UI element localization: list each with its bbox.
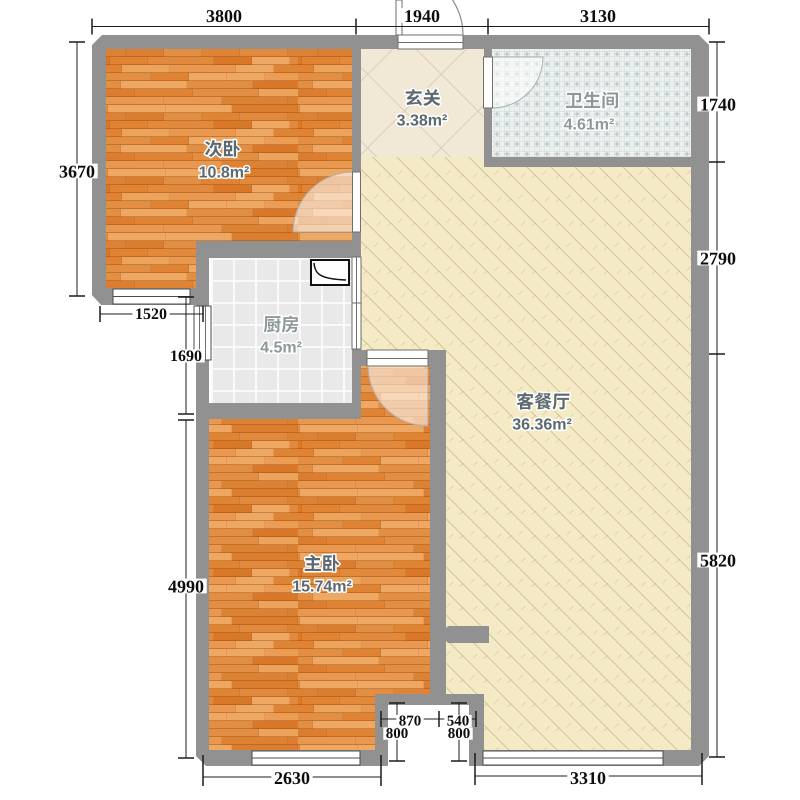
svg-text:2630: 2630 <box>274 768 310 788</box>
svg-text:4.61m²: 4.61m² <box>564 117 615 134</box>
svg-text:5820: 5820 <box>700 551 736 571</box>
svg-text:2790: 2790 <box>700 249 736 269</box>
svg-text:3310: 3310 <box>570 768 606 788</box>
svg-text:1690: 1690 <box>170 348 202 365</box>
svg-text:1940: 1940 <box>404 6 440 26</box>
svg-text:4.5m²: 4.5m² <box>260 340 302 357</box>
svg-text:10.8m²: 10.8m² <box>199 165 250 182</box>
svg-text:800: 800 <box>386 726 409 742</box>
svg-text:3.38m²: 3.38m² <box>397 113 448 130</box>
svg-text:36.36m²: 36.36m² <box>512 417 572 434</box>
svg-text:800: 800 <box>448 726 471 742</box>
svg-text:3670: 3670 <box>59 162 95 182</box>
svg-text:3800: 3800 <box>206 6 242 26</box>
svg-text:15.74m²: 15.74m² <box>292 579 352 596</box>
svg-text:4990: 4990 <box>168 577 204 597</box>
svg-text:1520: 1520 <box>135 306 167 323</box>
svg-text:3130: 3130 <box>580 6 616 26</box>
svg-text:1740: 1740 <box>700 95 736 115</box>
